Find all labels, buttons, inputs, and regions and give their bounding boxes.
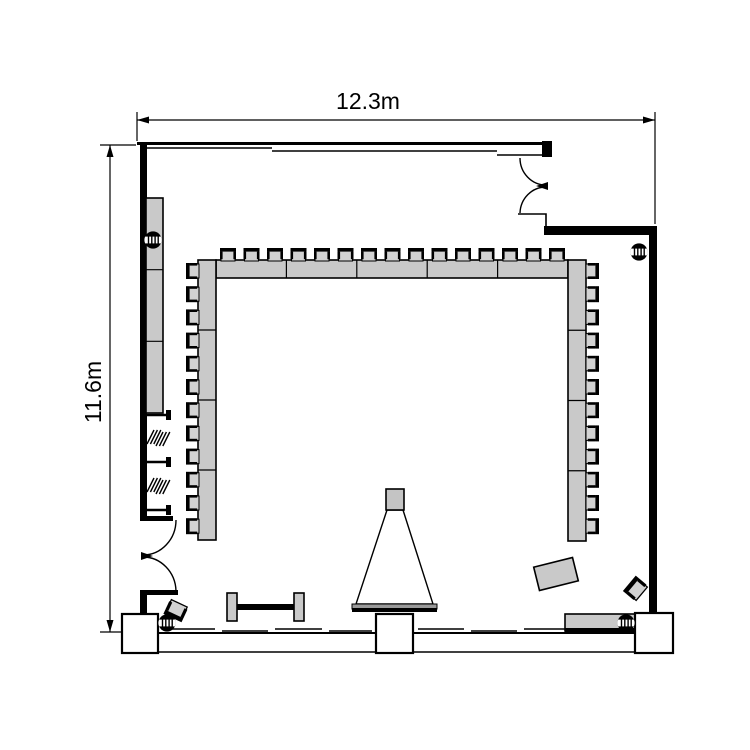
folding-table: [227, 593, 304, 621]
side-counter: [146, 198, 163, 413]
dimension-arrow-icon: [643, 117, 655, 124]
tilted-table: [534, 558, 579, 591]
chair-icon: [586, 263, 599, 279]
door-top-step: [518, 214, 546, 228]
door-left-arc-lower: [143, 557, 176, 591]
floor-plan-drawing: 12.3m 11.6m: [0, 0, 750, 750]
chair-icon: [586, 449, 599, 465]
door-top-arc-lower: [520, 187, 546, 213]
chair-icon: [385, 248, 401, 261]
dimension-top: 12.3m: [137, 88, 655, 224]
chair-icon: [244, 248, 260, 261]
chair-row-right: [586, 263, 599, 534]
floor-plan-canvas: 12.3m 11.6m: [0, 0, 750, 750]
table-top-row: [216, 260, 568, 278]
chair-icon: [186, 425, 199, 441]
dimension-arrow-icon: [137, 117, 149, 124]
chair-icon: [502, 248, 518, 261]
shelf-bracket-cap: [166, 457, 171, 467]
dimension-arrow-icon: [107, 620, 114, 632]
wall-column-bottom-center: [376, 614, 413, 653]
chair-icon: [479, 248, 495, 261]
folding-table-leg: [227, 593, 237, 621]
chair-icon: [267, 248, 283, 261]
chair-icon: [291, 248, 307, 261]
chair-icon: [186, 449, 199, 465]
chair-icon: [408, 248, 424, 261]
chair-icon: [186, 263, 199, 279]
chair-icon: [549, 248, 565, 261]
table-dividers: [198, 260, 586, 471]
stacked-chair-bottom-right: [623, 576, 648, 602]
wall-column-bottom-left: [122, 614, 158, 653]
wall-right: [649, 226, 657, 616]
dimension-arrow-icon: [107, 145, 114, 157]
chair-icon: [314, 248, 330, 261]
chair-icon: [361, 248, 377, 261]
shelf-brackets: [146, 410, 171, 515]
chair-icon: [526, 248, 542, 261]
chair-icon: [186, 495, 199, 511]
door-left-jamb-upper: [140, 516, 173, 521]
chair-icon: [586, 333, 599, 349]
chair-icon: [455, 248, 471, 261]
chair-icon: [586, 425, 599, 441]
chair-icon: [186, 402, 199, 418]
chair-icon: [186, 333, 199, 349]
door-top-hinge-cap: [542, 141, 552, 157]
chair-row-top: [220, 248, 565, 261]
chair-icon: [586, 379, 599, 395]
column-marker-icon: [630, 243, 648, 260]
chair-icon: [586, 402, 599, 418]
chair-icon: [586, 495, 599, 511]
chair-icon: [586, 518, 599, 534]
chair-icon: [186, 472, 199, 488]
dimension-left: 11.6m: [80, 145, 136, 632]
shelf-bracket-cap: [166, 505, 171, 515]
room-width-label: 12.3m: [336, 88, 400, 114]
chair-icon: [220, 248, 236, 261]
door-top-arc-upper: [520, 158, 546, 185]
projection-beam: [356, 510, 433, 604]
chair-icon: [586, 286, 599, 302]
wall-top-outer: [137, 142, 551, 145]
chair-icon: [186, 518, 199, 534]
chair-icon: [586, 309, 599, 325]
wall-column-bottom-right: [635, 613, 673, 653]
chair-icon: [186, 379, 199, 395]
door-left-leaf-tip: [141, 552, 153, 560]
chair-icon: [186, 309, 199, 325]
folding-table-beam: [237, 604, 294, 610]
folding-table-leg: [294, 593, 304, 621]
door-left-arc-upper: [143, 520, 176, 555]
chair-icon: [338, 248, 354, 261]
chair-icon: [586, 472, 599, 488]
chair-icon: [186, 286, 199, 302]
room-depth-label: 11.6m: [80, 361, 106, 423]
shelf-bracket-cap: [166, 410, 171, 420]
chair-icon: [432, 248, 448, 261]
projector-icon: [386, 489, 404, 510]
chair-row-left: [186, 263, 199, 534]
chair-icon: [186, 356, 199, 372]
wall-top-right: [544, 226, 657, 235]
projection-screen-base: [352, 608, 437, 612]
chair-icon: [586, 356, 599, 372]
